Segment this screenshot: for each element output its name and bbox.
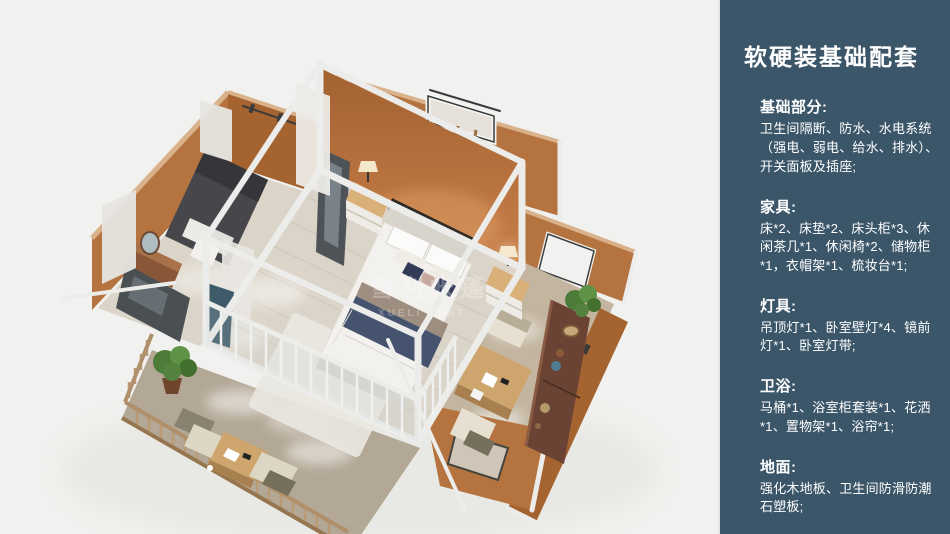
panel-title: 软硬装基础配套 <box>744 44 940 70</box>
teal-vase <box>551 361 561 371</box>
section-body: 马桶*1、浴室柜套装*1、花洒*1、置物架*1、浴帘*1; <box>760 399 940 436</box>
curtain <box>200 100 232 162</box>
basket-bowl <box>563 326 579 337</box>
section-body: 床*2、床垫*2、床头柜*3、休闲茶几*1、休闲椅*2、储物柜*1，衣帽架*1、… <box>760 220 940 276</box>
cup <box>207 465 213 471</box>
slide: 雪利帐篷 XUELI TENT 软硬装基础配套 基础部分: 卫生间隔断、防水、水… <box>0 0 950 534</box>
section-body: 强化木地板、卫生间防滑防潮石塑板; <box>760 480 940 517</box>
spec-section-furniture: 家具: 床*2、床垫*2、床头柜*3、休闲茶几*1、休闲椅*2、储物柜*1，衣帽… <box>760 196 940 276</box>
spec-section-flooring: 地面: 强化木地板、卫生间防滑防潮石塑板; <box>760 456 940 517</box>
section-body: 吊顶灯*1、卧室壁灯*4、镜前灯*1、卧室灯带; <box>760 319 940 356</box>
table-lamp <box>358 161 378 172</box>
spec-panel: 软硬装基础配套 基础部分: 卫生间隔断、防水、水电系统（强电、弱电、给水、排水）… <box>718 0 950 534</box>
section-heading: 灯具: <box>760 295 940 316</box>
section-heading: 家具: <box>760 196 940 217</box>
spec-section-basics: 基础部分: 卫生间隔断、防水、水电系统（强电、弱电、给水、排水）、开关面板及插座… <box>760 96 940 176</box>
spec-section-bathroom: 卫浴: 马桶*1、浴室柜套装*1、花洒*1、置物架*1、浴帘*1; <box>760 375 940 436</box>
watermark-en: XUELI TENT <box>378 308 466 319</box>
section-heading: 地面: <box>760 456 940 477</box>
floorplan-render: 雪利帐篷 XUELI TENT <box>0 0 718 534</box>
section-body: 卫生间隔断、防水、水电系统（强电、弱电、给水、排水）、开关面板及插座; <box>760 120 940 176</box>
spec-section-lighting: 灯具: 吊顶灯*1、卧室壁灯*4、镜前灯*1、卧室灯带; <box>760 295 940 356</box>
curtain <box>102 190 136 284</box>
watermark-cn: 雪利帐篷 <box>370 274 490 302</box>
isometric-floorplan-illustration: 雪利帐篷 XUELI TENT <box>0 0 718 534</box>
round-mirror <box>141 232 159 254</box>
section-heading: 卫浴: <box>760 375 940 396</box>
section-heading: 基础部分: <box>760 96 940 117</box>
